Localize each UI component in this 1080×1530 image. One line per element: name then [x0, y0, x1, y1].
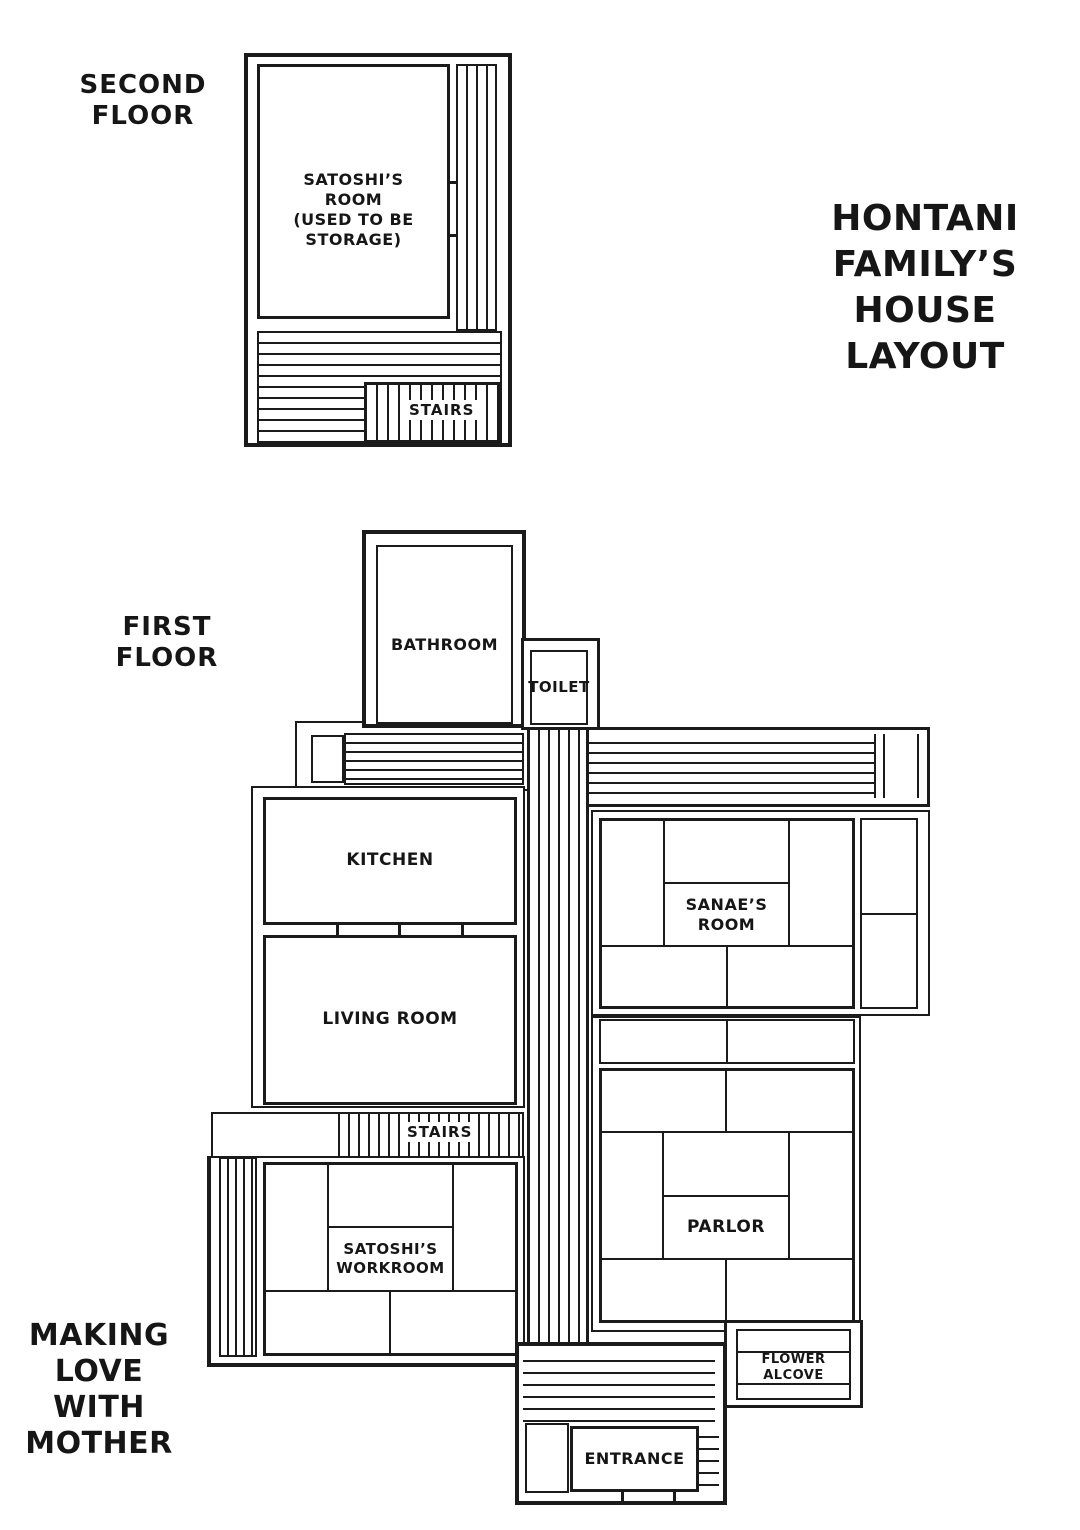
kitchen-label: KITCHEN: [266, 800, 514, 922]
passage-divider: [726, 1021, 728, 1062]
living-room: LIVING ROOM: [263, 935, 517, 1105]
flower-alcove: FLOWER ALCOVE: [724, 1320, 863, 1408]
central-corridor: [527, 726, 589, 1347]
kitchen: KITCHEN: [263, 797, 517, 925]
north-veranda-closet: [883, 734, 919, 798]
stairs-label-2f: STAIRS: [403, 400, 480, 420]
satoshis-workroom: SATOSHI’S WORKROOM: [263, 1162, 518, 1356]
bathroom: BATHROOM: [376, 545, 513, 724]
satoshis-room-label: SATOSHI’S ROOM (USED TO BE STORAGE): [260, 67, 447, 316]
west-veranda-stripes: [219, 1157, 257, 1357]
sanaes-room: SANAE’S ROOM: [599, 818, 855, 1009]
tatami-line: [389, 1292, 391, 1353]
floor-title-first: FIRST FLOOR: [82, 612, 252, 673]
satoshis-workroom-label: SATOSHI’S WORKROOM: [329, 1228, 452, 1290]
entrance-closet: [525, 1423, 569, 1493]
tatami-line: [602, 1258, 852, 1260]
living-room-label: LIVING ROOM: [266, 938, 514, 1102]
balcony-stripes-2f: [456, 64, 497, 331]
floor-title-second: SECOND FLOOR: [58, 70, 228, 131]
floor-plan-page: SECOND FLOOR HONTANI FAMILY’S HOUSE LAYO…: [0, 0, 1080, 1530]
tatami-line: [726, 947, 728, 1006]
entrance-room: ENTRANCE: [570, 1426, 699, 1492]
entrance-step-stripes: [523, 1350, 715, 1422]
nw-corridor-stripes: [344, 733, 524, 785]
tatami-line: [725, 1260, 727, 1320]
north-veranda: [586, 727, 930, 807]
door-tick: [398, 923, 401, 937]
parlor-room: PARLOR: [599, 1068, 855, 1323]
flower-alcove-inner: FLOWER ALCOVE: [736, 1329, 851, 1400]
house-title: HONTANI FAMILY’S HOUSE LAYOUT: [795, 196, 1055, 380]
flower-alcove-label: FLOWER ALCOVE: [738, 1351, 849, 1385]
entrance-block: ENTRANCE: [515, 1342, 727, 1505]
parlor-label: PARLOR: [664, 1197, 788, 1258]
closet-divider: [862, 913, 916, 915]
nw-corridor-closet: [311, 735, 344, 783]
mid-passage: [599, 1019, 855, 1064]
stairs-area-2f: STAIRS: [364, 382, 502, 443]
stairs-area-1f: STAIRS: [211, 1112, 524, 1158]
north-veranda-stripes: [589, 734, 876, 798]
entrance-label: ENTRANCE: [573, 1429, 696, 1489]
tatami-line: [725, 1071, 727, 1131]
toilet: TOILET: [530, 650, 588, 725]
tatami-line: [788, 1133, 790, 1258]
stairs-label-1f: STAIRS: [401, 1122, 478, 1142]
satoshis-room-2f: SATOSHI’S ROOM (USED TO BE STORAGE): [257, 64, 450, 319]
door-tick: [673, 1489, 676, 1505]
door-tick: [621, 1489, 624, 1505]
series-title: MAKING LOVE WITH MOTHER: [8, 1318, 190, 1462]
tatami-line: [452, 1165, 454, 1290]
door-tick: [461, 923, 464, 937]
toilet-label: TOILET: [524, 652, 594, 723]
bathroom-label: BATHROOM: [378, 547, 511, 722]
sanae-closet: [860, 818, 918, 1009]
door-tick: [336, 923, 339, 937]
entrance-side-stripes: [699, 1426, 719, 1490]
sanaes-room-label: SANAE’S ROOM: [663, 884, 790, 945]
tatami-line: [602, 1131, 852, 1133]
